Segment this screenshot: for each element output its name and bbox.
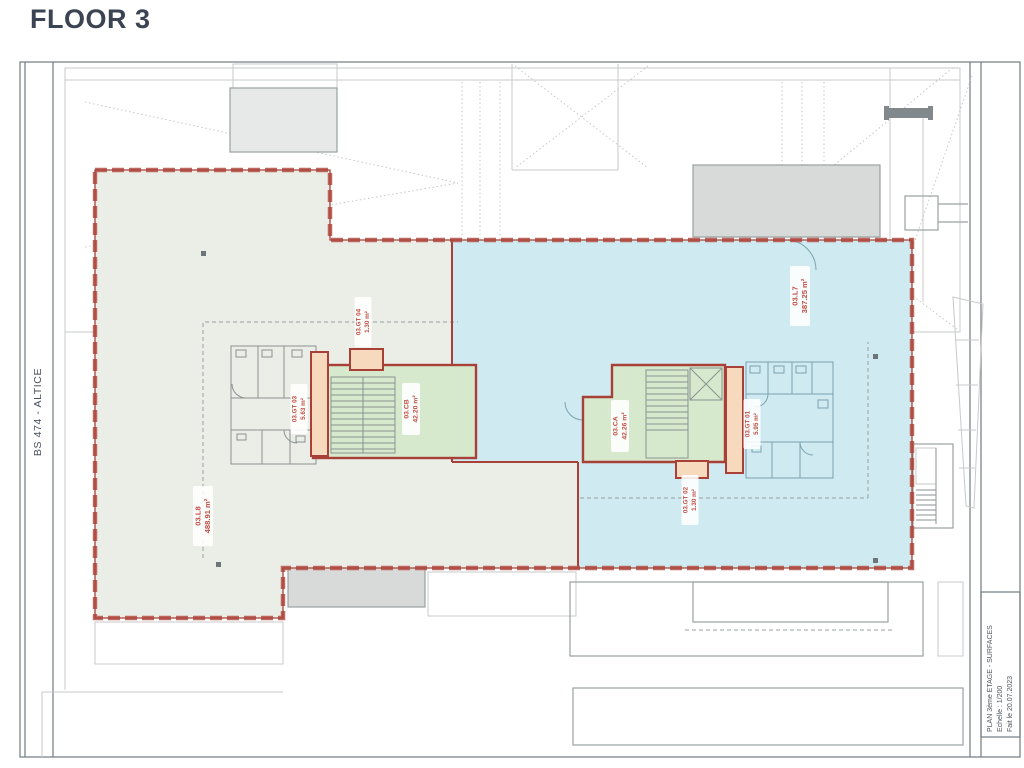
floor-plan-drawing: 03.L8 488.91 m² 03.L7 387.25 m² 03.CB 42…	[0, 0, 1024, 768]
svg-text:1.30 m²: 1.30 m²	[364, 311, 371, 333]
svg-text:03.L8: 03.L8	[194, 506, 203, 525]
svg-text:387.25 m²: 387.25 m²	[800, 278, 809, 313]
svg-text:5.63 m²: 5.63 m²	[300, 398, 307, 420]
title-block-scale: Echelle : 1/200	[997, 686, 1004, 732]
svg-text:03.GT 03: 03.GT 03	[292, 395, 299, 422]
roof-beam-symbol	[884, 106, 933, 120]
title-block: PLAN 3ème ETAGE - SURFACES Echelle : 1/2…	[987, 625, 1014, 732]
title-block-plan-name: PLAN 3ème ETAGE - SURFACES	[987, 625, 994, 732]
room-label-03GT01: 03.GT 01 5.95 m²	[744, 399, 761, 449]
sheet-reference-label: BS 474 - ALTICE	[32, 368, 44, 456]
shaft-03GT01	[726, 367, 743, 473]
svg-text:03.GT 01: 03.GT 01	[745, 410, 752, 437]
room-label-03CA: 03.CA 42.26 m²	[611, 400, 629, 452]
svg-text:42.20 m²: 42.20 m²	[413, 395, 420, 423]
svg-text:488.91 m²: 488.91 m²	[203, 498, 212, 533]
room-label-03GT04: 03.GT 04 1.30 m²	[355, 297, 372, 347]
svg-text:1.30 m²: 1.30 m²	[691, 489, 698, 511]
roof-hatch-block-right	[693, 165, 880, 237]
shaft-03GT04	[350, 349, 383, 370]
svg-text:03.CA: 03.CA	[613, 416, 620, 435]
roof-equipment-box	[905, 196, 968, 230]
room-label-03L7: 03.L7 387.25 m²	[790, 266, 810, 326]
room-label-03GT02: 03.GT 02 1.30 m²	[682, 475, 699, 525]
roof-hatch-block-left	[230, 88, 337, 152]
room-label-03GT03: 03.GT 03 5.63 m²	[291, 384, 308, 434]
svg-text:03.GT 04: 03.GT 04	[356, 308, 363, 335]
exterior-stair-symbol	[913, 444, 953, 528]
exterior-ramp	[953, 297, 983, 508]
svg-text:42.26 m²: 42.26 m²	[622, 412, 629, 440]
shaft-03GT03	[311, 352, 328, 456]
room-label-03L8: 03.L8 488.91 m²	[193, 486, 213, 546]
svg-text:03.L7: 03.L7	[791, 286, 800, 305]
svg-text:03.CB: 03.CB	[404, 399, 411, 418]
title-block-date: Fait le 20.07.2023	[1007, 676, 1014, 732]
room-label-03CB: 03.CB 42.20 m²	[402, 383, 420, 435]
svg-text:03.GT 02: 03.GT 02	[683, 486, 690, 513]
terrace-hatch-block	[288, 566, 425, 607]
svg-text:5.95 m²: 5.95 m²	[753, 413, 760, 435]
floor-plan-sheet: FLOOR 3	[0, 0, 1024, 768]
